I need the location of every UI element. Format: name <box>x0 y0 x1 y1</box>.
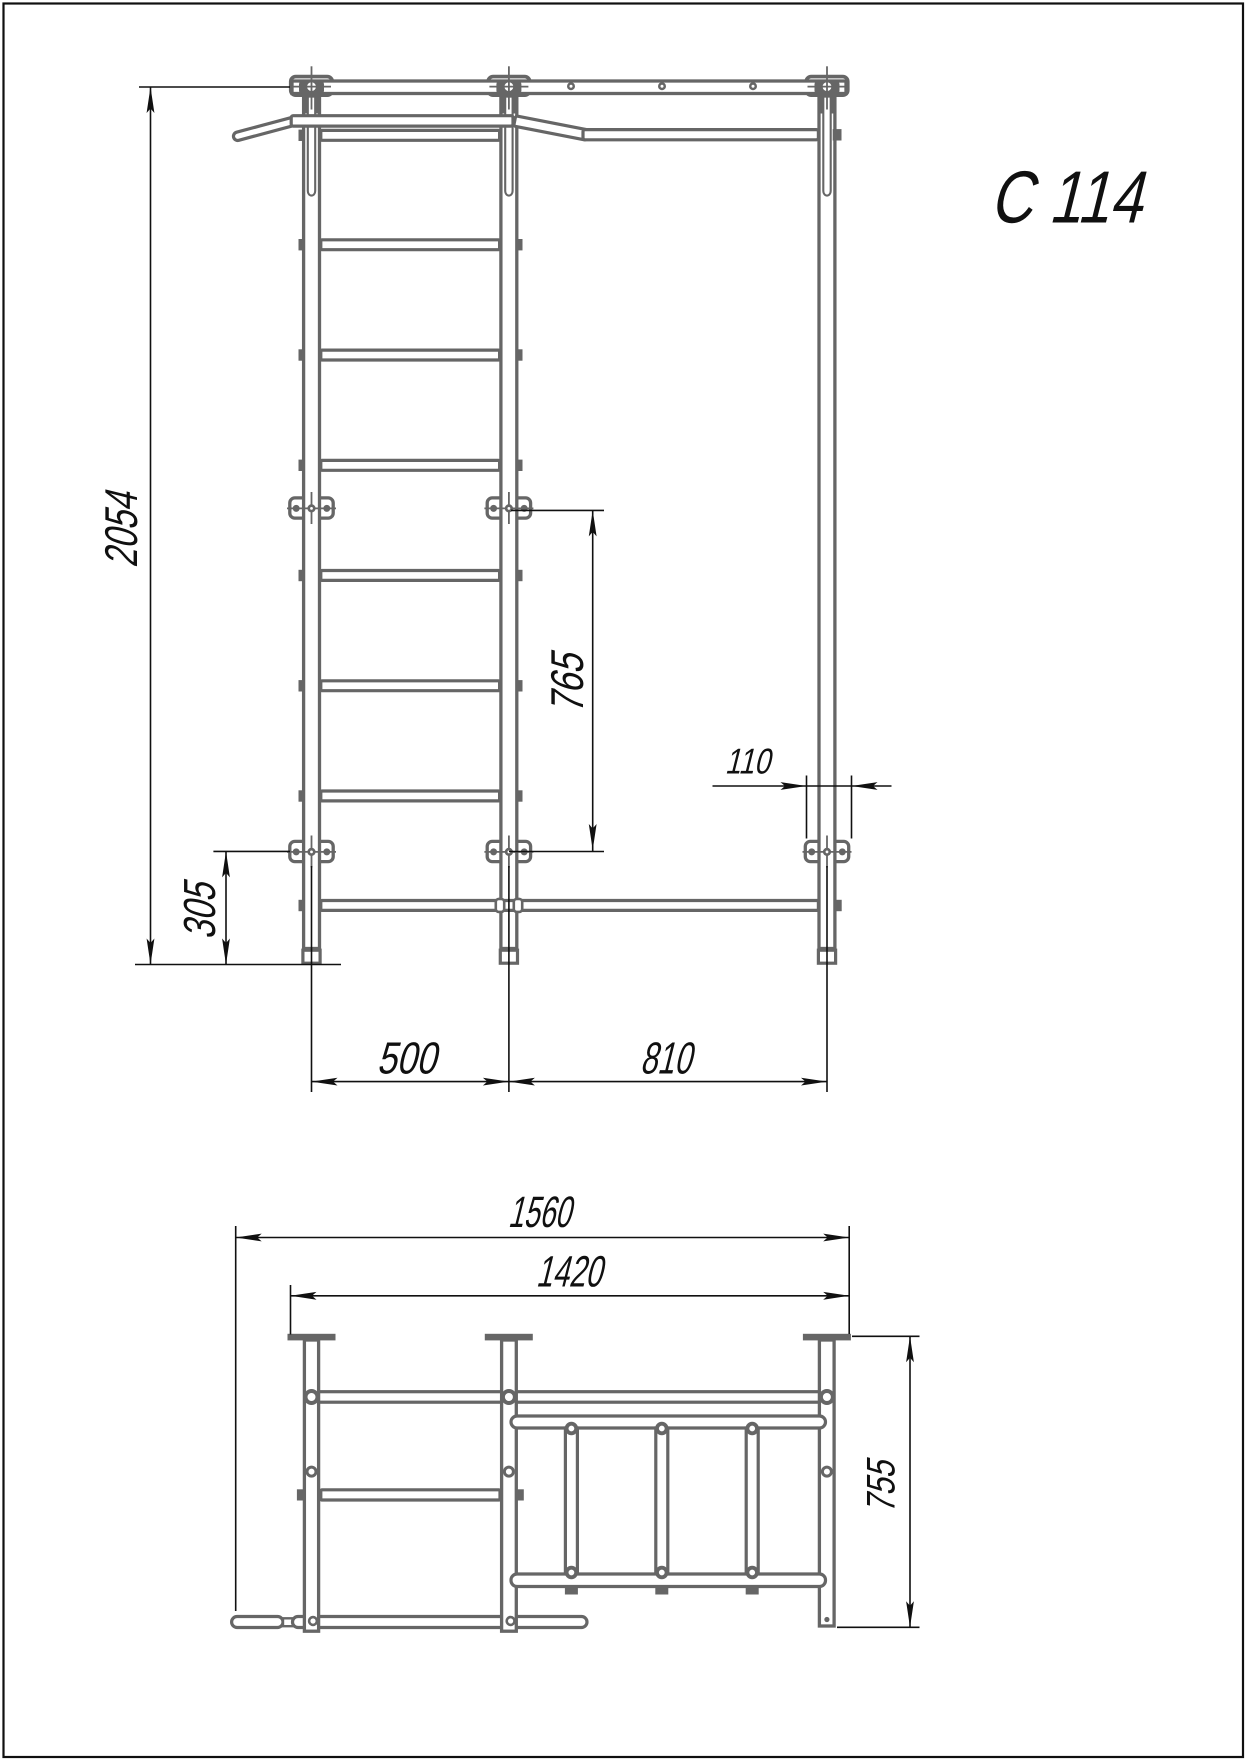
svg-text:110: 110 <box>723 741 778 781</box>
svg-text:500: 500 <box>374 1033 446 1083</box>
svg-text:765: 765 <box>541 644 592 716</box>
svg-text:755: 755 <box>858 1452 903 1515</box>
svg-text:1560: 1560 <box>505 1189 580 1237</box>
svg-text:2054: 2054 <box>95 483 146 571</box>
svg-text:C 114: C 114 <box>985 156 1158 239</box>
svg-text:305: 305 <box>175 874 225 943</box>
svg-text:810: 810 <box>637 1033 701 1083</box>
svg-text:1420: 1420 <box>533 1248 611 1296</box>
